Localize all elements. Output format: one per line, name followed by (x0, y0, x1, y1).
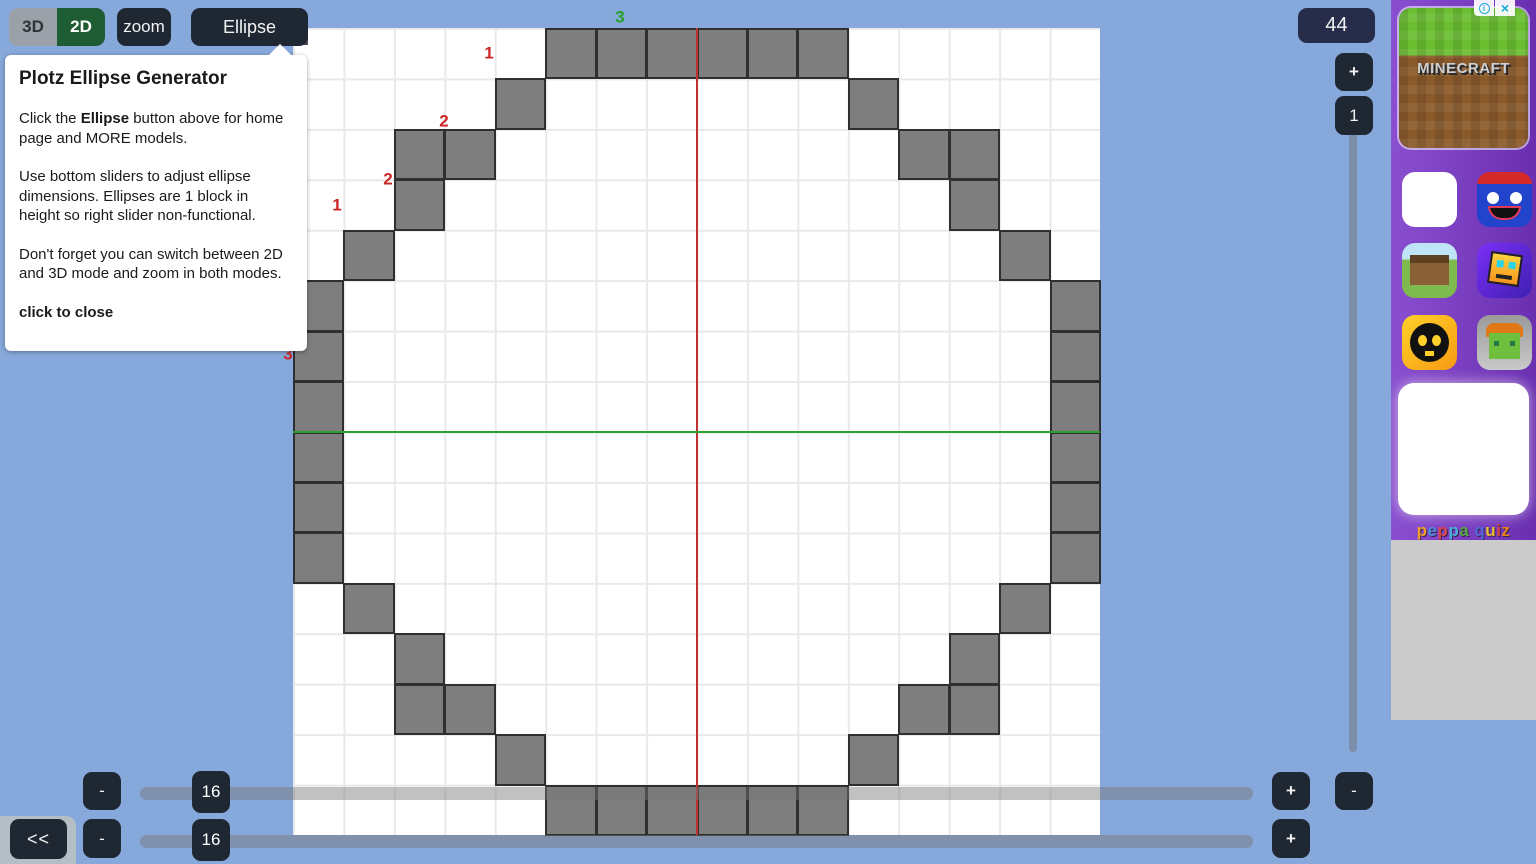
width-slider-track[interactable] (140, 787, 1253, 800)
grid-block (1050, 381, 1101, 432)
grid-block (343, 230, 394, 281)
grid-block (949, 179, 1000, 230)
height-slider-handle[interactable]: 1 (1335, 96, 1373, 135)
plotz-ellipse-app: { "toolbar": { "mode_3d": "3D", "mode_2d… (0, 0, 1536, 864)
grid-block (949, 633, 1000, 684)
grid-block (495, 734, 546, 785)
callout-paragraph-3: Don't forget you can switch between 2D a… (19, 245, 293, 284)
ad-white-tile[interactable] (1398, 383, 1529, 515)
grid-block (444, 684, 495, 735)
grid-block (949, 684, 1000, 735)
height-minus-button[interactable]: - (1335, 772, 1373, 810)
info-callout[interactable]: Plotz Ellipse Generator Click the Ellips… (5, 55, 307, 351)
grid-block (293, 532, 344, 583)
grid-block (394, 179, 445, 230)
grid-block (293, 381, 344, 432)
width-plus-button[interactable]: + (1272, 772, 1310, 810)
grid-block (1050, 280, 1101, 331)
grid-block (495, 78, 546, 129)
ad-placeholder (1391, 540, 1536, 720)
block-grid-canvas (293, 28, 1100, 835)
run-length-label: 1 (332, 197, 341, 214)
callout-title: Plotz Ellipse Generator (19, 68, 293, 90)
grid-block (1050, 331, 1101, 382)
grid-block (1050, 532, 1101, 583)
grid-block (898, 684, 949, 735)
horizontal-center-line (293, 431, 1100, 433)
run-length-label: 1 (484, 45, 493, 62)
grid-block (1050, 432, 1101, 483)
minecraft-logo-text: MINECRAFT (1399, 60, 1528, 77)
mode-toggle: 3D 2D (9, 8, 105, 46)
grid-block (697, 28, 748, 79)
ad-info-icon[interactable]: i (1474, 0, 1494, 16)
grid-block (343, 583, 394, 634)
block-count-badge: 44 (1298, 8, 1375, 43)
depth-slider-handle[interactable]: 16 (192, 819, 230, 861)
callout-paragraph-1: Click the Ellipse button above for home … (19, 109, 293, 148)
depth-plus-button[interactable]: + (1272, 819, 1310, 858)
run-length-label: 2 (383, 171, 392, 188)
grid-block (898, 129, 949, 180)
geometry-dash-icon[interactable] (1477, 243, 1532, 298)
minecraft-logo-tile[interactable]: MINECRAFT (1399, 8, 1528, 148)
grid-block (596, 28, 647, 79)
back-button[interactable]: << (10, 819, 67, 859)
grid-block (797, 28, 848, 79)
grid-block (747, 28, 798, 79)
depth-minus-button[interactable]: - (83, 819, 121, 858)
grid-block (949, 129, 1000, 180)
ad-close-icon[interactable]: × (1495, 0, 1515, 16)
brawl-stars-icon[interactable] (1402, 315, 1457, 370)
grid-block (394, 633, 445, 684)
run-length-label: 3 (615, 9, 624, 26)
grid-block (848, 78, 899, 129)
grid-block (293, 432, 344, 483)
grid-block (293, 482, 344, 533)
height-slider-track[interactable] (1349, 120, 1357, 752)
grid-block (394, 684, 445, 735)
ellipse-button[interactable]: Ellipse (191, 8, 308, 46)
zoom-in-button[interactable]: + (1335, 53, 1373, 91)
huggy-wuggy-icon[interactable] (1477, 172, 1532, 227)
width-slider-handle[interactable]: 16 (192, 771, 230, 813)
callout-close-text[interactable]: click to close (19, 303, 293, 323)
grid-block (1050, 482, 1101, 533)
grid-block (545, 28, 596, 79)
grid-block (646, 28, 697, 79)
mode-3d-button[interactable]: 3D (9, 8, 57, 46)
grid-block (999, 583, 1050, 634)
ad-footer-text: peppa quiz (1391, 521, 1536, 540)
ad-panel[interactable]: i × MINECRAFT peppa quiz (1391, 0, 1536, 540)
blank-tile-icon[interactable] (1402, 172, 1457, 227)
width-minus-button[interactable]: - (83, 772, 121, 810)
grid-block (444, 129, 495, 180)
zoom-button[interactable]: zoom (117, 8, 171, 46)
depth-slider-track[interactable] (140, 835, 1253, 848)
mode-2d-button[interactable]: 2D (57, 8, 105, 46)
run-length-label: 2 (439, 113, 448, 130)
minecraft-house-icon[interactable] (1402, 243, 1457, 298)
zombie-miner-icon[interactable] (1477, 315, 1532, 370)
grid-block (848, 734, 899, 785)
grid-block (394, 129, 445, 180)
grid-block (999, 230, 1050, 281)
callout-paragraph-2: Use bottom sliders to adjust ellipse dim… (19, 167, 293, 226)
